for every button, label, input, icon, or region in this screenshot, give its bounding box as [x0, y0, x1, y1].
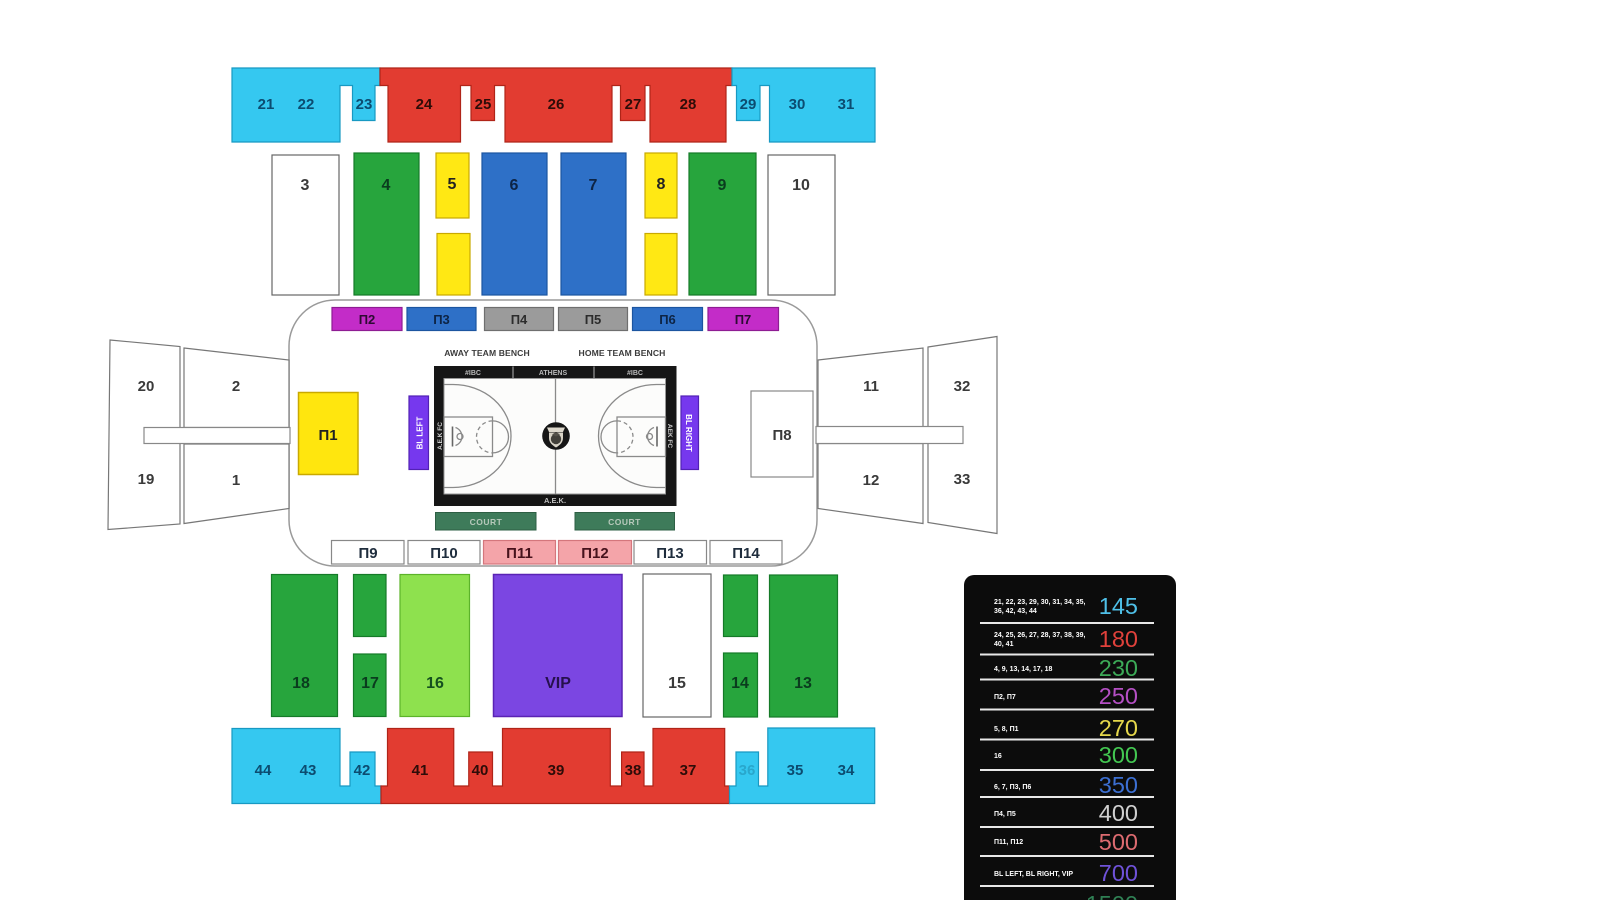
- svg-text:145: 145: [1099, 593, 1138, 619]
- svg-text:180: 180: [1099, 626, 1138, 652]
- svg-text:24, 25, 26, 27, 28, 37, 38, 39: 24, 25, 26, 27, 28, 37, 38, 39,: [994, 632, 1086, 639]
- svg-text:5, 8, П1: 5, 8, П1: [994, 726, 1019, 733]
- svg-text:П14: П14: [732, 545, 760, 562]
- svg-text:21, 22, 23, 29, 30, 31, 34, 35: 21, 22, 23, 29, 30, 31, 34, 35,: [994, 599, 1086, 606]
- svg-text:П11: П11: [506, 545, 533, 562]
- svg-text:BL LEFT, BL RIGHT, VIP: BL LEFT, BL RIGHT, VIP: [994, 871, 1073, 878]
- svg-text:#IBC: #IBC: [465, 370, 481, 377]
- svg-text:П4, П5: П4, П5: [994, 811, 1016, 818]
- svg-text:43: 43: [300, 762, 317, 779]
- svg-text:41: 41: [412, 762, 429, 779]
- svg-text:4, 9, 13, 14, 17, 18: 4, 9, 13, 14, 17, 18: [994, 666, 1052, 673]
- svg-text:П3: П3: [433, 312, 450, 327]
- svg-text:7: 7: [589, 177, 598, 194]
- svg-text:350: 350: [1099, 772, 1138, 798]
- svg-text:22: 22: [298, 96, 315, 113]
- svg-text:25: 25: [475, 96, 492, 113]
- svg-text:A.E.K.: A.E.K.: [544, 496, 566, 505]
- svg-text:10: 10: [792, 177, 810, 194]
- svg-text:38: 38: [625, 762, 642, 779]
- svg-text:28: 28: [680, 96, 697, 113]
- svg-text:230: 230: [1099, 655, 1138, 681]
- svg-text:A.E.K FC: A.E.K FC: [437, 422, 444, 450]
- svg-text:BL RIGHT: BL RIGHT: [684, 414, 693, 452]
- svg-text:39: 39: [548, 762, 565, 779]
- svg-text:П13: П13: [656, 545, 683, 562]
- svg-text:21: 21: [258, 96, 275, 113]
- svg-text:П1: П1: [318, 427, 337, 444]
- svg-text:#IBC: #IBC: [627, 370, 643, 377]
- svg-text:П2, П7: П2, П7: [994, 694, 1016, 701]
- svg-text:П11, П12: П11, П12: [994, 839, 1023, 846]
- svg-text:32: 32: [954, 378, 971, 395]
- svg-text:300: 300: [1099, 742, 1138, 768]
- svg-text:44: 44: [255, 762, 272, 779]
- svg-text:8: 8: [657, 176, 666, 193]
- svg-text:П10: П10: [430, 545, 457, 562]
- svg-text:24: 24: [416, 96, 433, 113]
- svg-text:П2: П2: [359, 312, 376, 327]
- svg-text:VIP: VIP: [545, 675, 571, 692]
- svg-text:П5: П5: [585, 312, 602, 327]
- svg-text:13: 13: [794, 675, 812, 692]
- svg-text:36: 36: [739, 762, 756, 779]
- svg-text:33: 33: [954, 471, 971, 488]
- svg-text:270: 270: [1099, 715, 1138, 741]
- svg-text:9: 9: [718, 177, 727, 194]
- svg-text:29: 29: [740, 96, 757, 113]
- svg-text:20: 20: [138, 378, 155, 395]
- svg-text:П8: П8: [772, 427, 791, 444]
- svg-text:COURT: COURT: [470, 517, 503, 527]
- svg-text:П9: П9: [358, 545, 377, 562]
- svg-text:П7: П7: [735, 312, 752, 327]
- svg-text:27: 27: [625, 96, 642, 113]
- svg-text:16: 16: [994, 753, 1002, 760]
- svg-text:11: 11: [863, 378, 879, 395]
- svg-text:40: 40: [472, 762, 489, 779]
- svg-text:5: 5: [448, 176, 457, 193]
- svg-text:34: 34: [838, 762, 855, 779]
- svg-text:31: 31: [838, 96, 855, 113]
- svg-text:П6: П6: [659, 312, 676, 327]
- svg-text:П4: П4: [511, 312, 528, 327]
- svg-text:40, 41: 40, 41: [994, 641, 1014, 648]
- svg-text:18: 18: [292, 675, 310, 692]
- svg-text:2: 2: [232, 378, 240, 395]
- svg-text:AEK FC: AEK FC: [666, 424, 673, 449]
- svg-text:HOME TEAM BENCH: HOME TEAM BENCH: [579, 348, 666, 358]
- svg-text:П12: П12: [581, 545, 608, 562]
- svg-text:15: 15: [668, 675, 686, 692]
- svg-text:1500: 1500: [1086, 891, 1138, 900]
- svg-text:12: 12: [863, 472, 880, 489]
- svg-text:23: 23: [356, 96, 373, 113]
- svg-text:4: 4: [382, 177, 391, 194]
- svg-text:500: 500: [1099, 829, 1138, 855]
- svg-text:COURT: COURT: [608, 517, 641, 527]
- svg-text:19: 19: [138, 471, 155, 488]
- svg-text:37: 37: [680, 762, 697, 779]
- svg-text:3: 3: [301, 177, 310, 194]
- svg-text:30: 30: [789, 96, 806, 113]
- svg-text:6, 7, П3, П6: 6, 7, П3, П6: [994, 784, 1031, 791]
- svg-text:36, 42, 43, 44: 36, 42, 43, 44: [994, 608, 1037, 615]
- svg-text:400: 400: [1099, 800, 1138, 826]
- svg-text:1: 1: [232, 472, 240, 489]
- svg-text:17: 17: [361, 675, 379, 692]
- svg-text:AWAY TEAM BENCH: AWAY TEAM BENCH: [444, 348, 530, 358]
- svg-text:26: 26: [548, 96, 565, 113]
- svg-text:35: 35: [787, 762, 804, 779]
- svg-text:250: 250: [1099, 683, 1138, 709]
- svg-text:16: 16: [426, 675, 444, 692]
- svg-text:6: 6: [510, 177, 519, 194]
- svg-text:BL LEFT: BL LEFT: [416, 417, 425, 450]
- svg-text:ATHENS: ATHENS: [539, 370, 568, 377]
- svg-text:42: 42: [354, 762, 371, 779]
- svg-text:14: 14: [731, 675, 749, 692]
- svg-text:700: 700: [1099, 860, 1138, 886]
